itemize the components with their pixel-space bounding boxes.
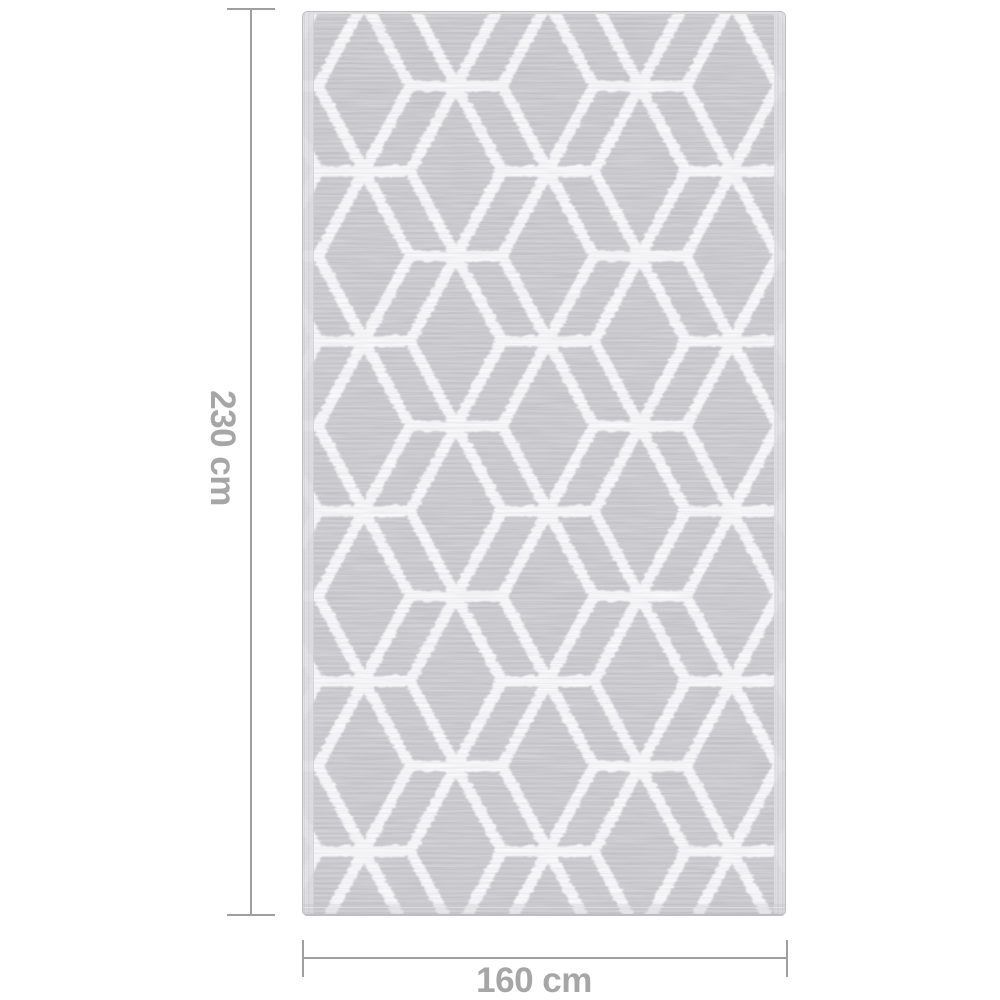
svg-text:160 cm: 160 cm [476,961,592,1000]
svg-text:230 cm: 230 cm [203,390,242,506]
